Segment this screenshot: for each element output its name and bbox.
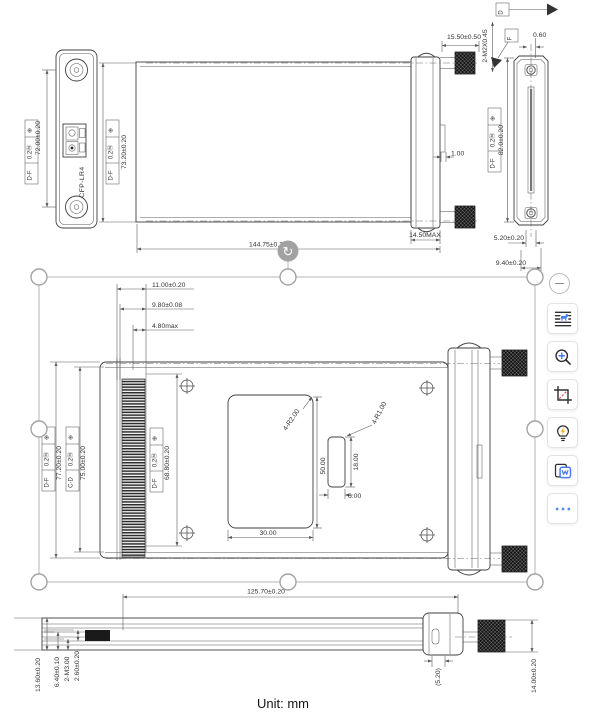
gdt-pos: ⊕ bbox=[28, 128, 34, 133]
dim-plan-600: 6.00 bbox=[348, 493, 361, 500]
dim-slot: 1.00 bbox=[451, 151, 464, 158]
dim-plan-r1: 4-R1.00 bbox=[371, 401, 389, 426]
selection-handle[interactable] bbox=[280, 574, 296, 590]
dim-plan-7500: 75.00±0.20 bbox=[80, 446, 87, 480]
gdt-tol: 0.2Ⓜ bbox=[43, 452, 51, 466]
selection-handle[interactable] bbox=[31, 421, 47, 437]
selection-handle[interactable] bbox=[31, 269, 47, 285]
dim-end-940: 9.40±0.20 bbox=[496, 260, 526, 267]
cad-drawing: CFP-LR4 72.00±0.20 73.20±0.20 bbox=[0, 0, 612, 728]
dim-plan-1800: 18.00 bbox=[353, 453, 360, 470]
dim-plan-980: 9.80±0.08 bbox=[152, 302, 182, 309]
dim-bottom-520: (5.20) bbox=[435, 668, 442, 686]
selection-handle[interactable] bbox=[280, 269, 296, 285]
dim-bottom-640: 6.40±0.10 bbox=[54, 657, 61, 687]
dim-bottom-length: 125.70±0.20 bbox=[247, 589, 285, 596]
plan-view: 11.00±0.20 9.80±0.08 4.80max 77.20±0.20 … bbox=[50, 282, 527, 575]
selection-handle[interactable] bbox=[527, 421, 543, 437]
lightbulb-icon bbox=[553, 423, 573, 443]
gdt-pos: ⊕ bbox=[45, 435, 51, 440]
dim-plan-1100: 11.00±0.20 bbox=[152, 282, 186, 289]
ocr-document-icon bbox=[553, 309, 573, 329]
gdt-datum: D-F bbox=[45, 477, 51, 487]
export-word-icon bbox=[553, 461, 573, 481]
rotate-handle[interactable]: ↻ bbox=[278, 241, 299, 262]
datum-f-label: F bbox=[508, 36, 514, 40]
gdt-tol: 0.2Ⓜ bbox=[67, 452, 75, 466]
screw-symbol bbox=[179, 378, 435, 543]
gdt-datum: D-F bbox=[109, 170, 115, 180]
dim-plan-6880: 68.80±0.20 bbox=[164, 446, 171, 480]
gdt-tol: 0.2Ⓜ bbox=[151, 453, 159, 467]
gdt-pos: ⊕ bbox=[109, 128, 115, 133]
gdt-datum: D-F bbox=[28, 170, 34, 180]
dim-front-height: 72.00±0.20 bbox=[35, 121, 42, 155]
smart-suggest-button[interactable] bbox=[547, 417, 578, 448]
selection-handle[interactable] bbox=[527, 269, 543, 285]
more-button[interactable] bbox=[547, 493, 578, 524]
gdt-frames: ⊕ 0.2Ⓜ D-F ⊕ 0.2Ⓜ D-F ⊕ 0.2Ⓜ D-F ⊕ 0.2Ⓜ … bbox=[25, 108, 501, 492]
dim-plan-r2: 4-R2.00 bbox=[282, 408, 301, 432]
image-viewer-canvas: CFP-LR4 72.00±0.20 73.20±0.20 bbox=[0, 0, 612, 728]
datum-d-label: D bbox=[499, 10, 505, 15]
dim-offset: 0.60 bbox=[533, 32, 546, 39]
dim-plan-480: 4.80max bbox=[152, 323, 179, 330]
dim-top-height: 73.20±0.20 bbox=[121, 135, 128, 169]
selection-handle[interactable] bbox=[527, 574, 543, 590]
dim-bottom-m3: 2-M3.00 bbox=[64, 656, 71, 681]
dim-bottom-260: 2.60±0.20 bbox=[74, 651, 81, 681]
gdt-tol: 0.2Ⓜ bbox=[26, 145, 34, 159]
gdt-pos: ⊕ bbox=[69, 435, 75, 440]
dim-bezel-max: 14.50MAX bbox=[409, 232, 441, 239]
front-view: CFP-LR4 72.00±0.20 bbox=[35, 50, 97, 228]
rotate-icon: ↻ bbox=[283, 244, 294, 259]
crop-button[interactable] bbox=[547, 379, 578, 410]
dim-bottom-1400: 14.00±0.20 bbox=[531, 659, 538, 693]
dim-screw-length: 15.50±0.50 bbox=[447, 34, 481, 41]
collapse-toolbar-button[interactable] bbox=[549, 273, 570, 294]
dim-end-height: 82.0±0.20 bbox=[498, 125, 505, 155]
gdt-datum: D-F bbox=[153, 478, 159, 488]
gdt-datum: C-D bbox=[69, 477, 75, 488]
zoom-in-icon bbox=[553, 347, 573, 367]
zoom-in-button[interactable] bbox=[547, 341, 578, 372]
gdt-datum: D-F bbox=[491, 158, 497, 168]
gdt-pos: ⊕ bbox=[153, 436, 159, 441]
more-icon bbox=[553, 499, 573, 519]
minus-icon bbox=[555, 283, 564, 285]
crop-icon bbox=[553, 385, 573, 405]
dim-overall-length: 144.75±0.2 bbox=[249, 242, 283, 249]
gdt-pos: ⊕ bbox=[491, 116, 497, 121]
unit-label: Unit: mm bbox=[257, 696, 309, 711]
bottom-view: 125.70±0.20 13.60±0.20 6.40±0.10 2-M3.00… bbox=[14, 589, 538, 693]
dim-screw-thread: 2-M2X0.45 bbox=[482, 29, 489, 62]
dim-plan-7720: 77.20±0.20 bbox=[56, 446, 63, 480]
gdt-tol: 0.2Ⓜ bbox=[107, 145, 115, 159]
export-word-button[interactable] bbox=[547, 455, 578, 486]
selection-handle[interactable] bbox=[31, 574, 47, 590]
ocr-document-button[interactable] bbox=[547, 303, 578, 334]
dim-plan-5000: 50.00 bbox=[320, 457, 327, 474]
gdt-tol: 0.2Ⓜ bbox=[489, 133, 497, 147]
dim-plan-3000: 30.00 bbox=[259, 530, 276, 537]
dim-bottom-1360: 13.60±0.20 bbox=[35, 658, 42, 692]
top-view: 73.20±0.20 15.50±0.50 2-M2X0.45 1.00 14.… bbox=[99, 22, 493, 253]
module-name-label: CFP-LR4 bbox=[79, 166, 86, 197]
dim-end-520: 5.20±0.20 bbox=[494, 235, 524, 242]
